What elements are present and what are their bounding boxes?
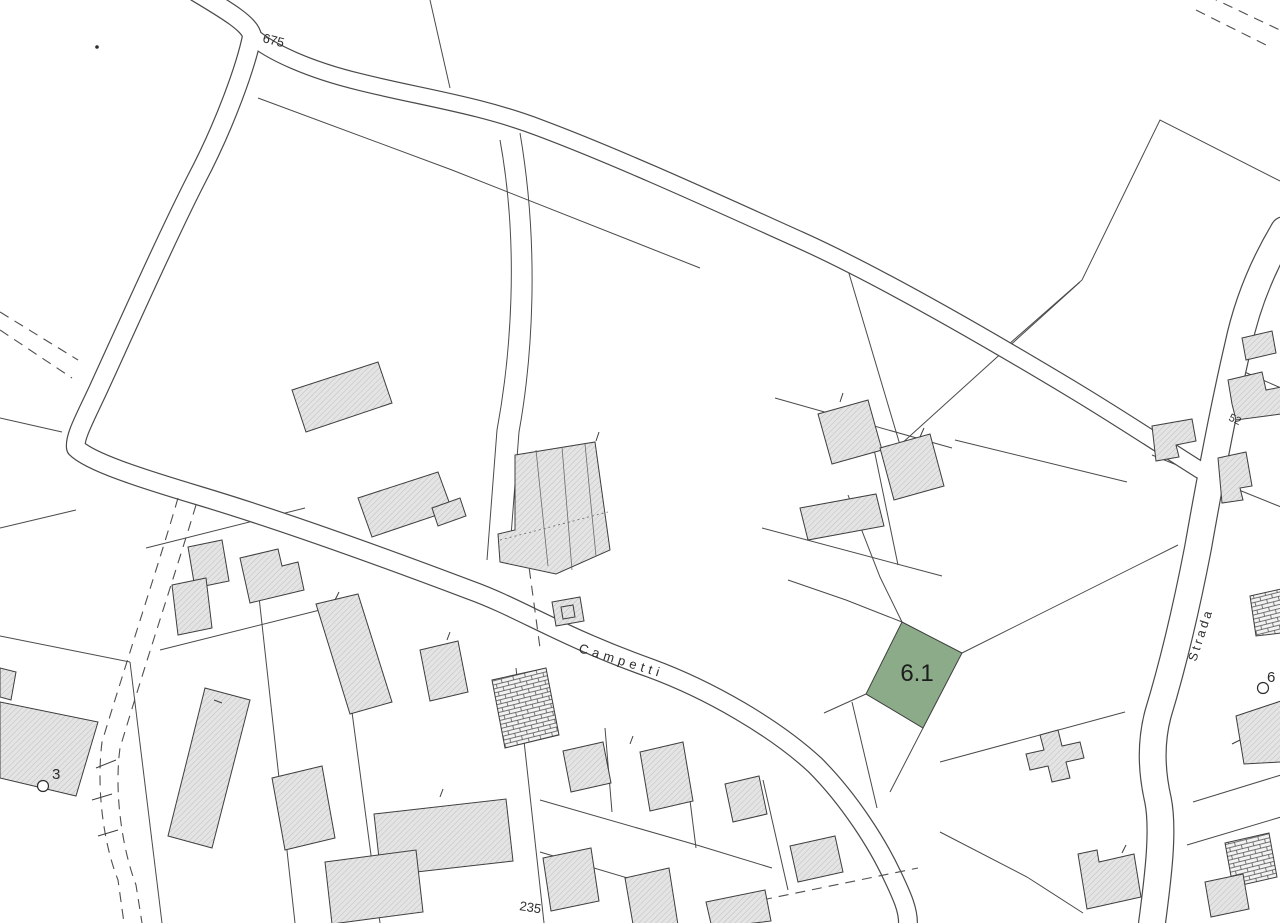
- cadastral-map-canvas[interactable]: 675 Campetti Strada 6.1 3 6 235 52: [0, 0, 1280, 923]
- building: [640, 742, 693, 811]
- map-viewport[interactable]: 675 Campetti Strada 6.1 3 6 235 52: [0, 0, 1280, 923]
- parcel-6-1-label: 6.1: [900, 660, 933, 687]
- small-shed-inner: [561, 605, 575, 619]
- building: [1205, 874, 1249, 917]
- building: [725, 776, 767, 822]
- building: [563, 742, 611, 792]
- survey-point-3-label: 3: [52, 766, 60, 783]
- building: [325, 850, 423, 923]
- building: [625, 868, 678, 923]
- building: [172, 578, 212, 635]
- survey-point-6-label: 6: [1267, 669, 1275, 686]
- building-large-central: [498, 442, 610, 574]
- survey-point-circle: [38, 781, 49, 792]
- building: [543, 848, 599, 911]
- boundary-dot: [95, 45, 99, 49]
- building-brick: [1250, 589, 1280, 636]
